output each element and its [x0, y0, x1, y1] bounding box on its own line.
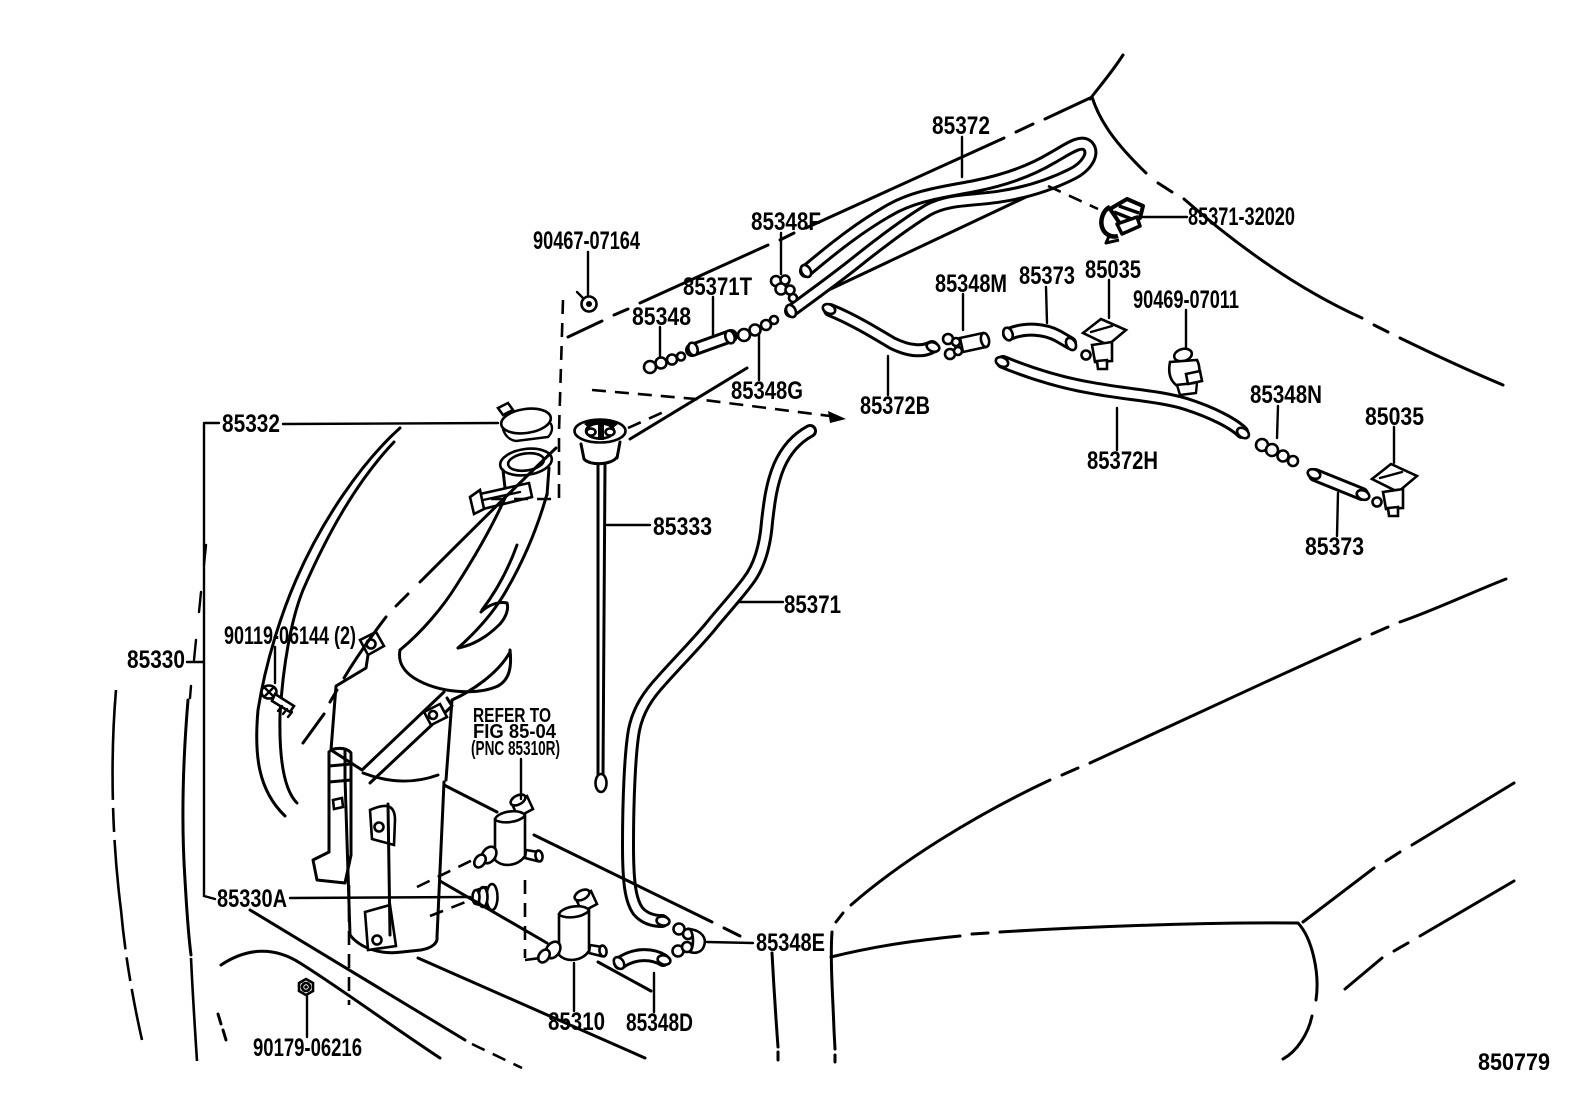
svg-text:85372: 85372	[932, 112, 990, 140]
svg-text:90467-07164: 90467-07164	[533, 227, 640, 255]
svg-text:85373: 85373	[1019, 262, 1075, 290]
svg-text:85348N: 85348N	[1250, 381, 1322, 409]
svg-text:85372H: 85372H	[1087, 447, 1158, 475]
svg-text:85371-32020: 85371-32020	[1188, 203, 1295, 231]
svg-text:850779: 850779	[1478, 1049, 1550, 1076]
svg-text:85330: 85330	[127, 646, 185, 674]
svg-text:85348D: 85348D	[626, 1009, 693, 1037]
svg-text:85035: 85035	[1085, 256, 1141, 284]
svg-text:85371: 85371	[784, 591, 841, 619]
svg-text:85371T: 85371T	[683, 273, 752, 301]
svg-text:85310: 85310	[548, 1008, 605, 1036]
svg-text:(PNC 85310R): (PNC 85310R)	[471, 738, 560, 760]
svg-text:85333: 85333	[653, 513, 712, 541]
svg-text:90119-06144 (2): 90119-06144 (2)	[224, 622, 356, 650]
svg-text:85332: 85332	[222, 410, 280, 438]
svg-text:90179-06216: 90179-06216	[253, 1034, 362, 1062]
svg-text:85348M: 85348M	[935, 270, 1007, 298]
svg-text:85348G: 85348G	[731, 377, 803, 405]
svg-text:85373: 85373	[1305, 533, 1364, 561]
svg-text:85372B: 85372B	[860, 392, 930, 420]
svg-text:85330A: 85330A	[217, 885, 287, 913]
svg-text:85348E: 85348E	[756, 929, 825, 957]
svg-text:85348F: 85348F	[751, 208, 821, 236]
svg-text:85348: 85348	[632, 303, 691, 331]
